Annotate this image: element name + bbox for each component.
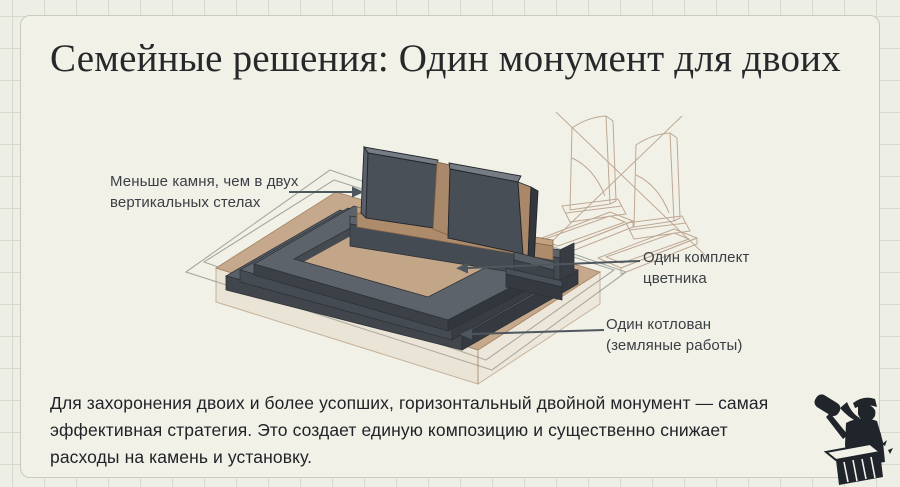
body-paragraph: Для захоронения двоих и более усопших, г… [50, 390, 798, 471]
stonemason-logo-icon [790, 390, 900, 487]
mallet-icon [812, 392, 842, 418]
annotation-less-stone: Меньше камня, чем в двух вертикальных ст… [110, 171, 300, 213]
slide-title: Семейные решения: Один монумент для двои… [50, 36, 850, 82]
annotation-excavation: Один котлован (земляные работы) [606, 314, 766, 356]
slide: Семейные решения: Один монумент для двои… [0, 0, 900, 487]
annotation-flowerbed: Один комплект цветника [643, 247, 768, 289]
